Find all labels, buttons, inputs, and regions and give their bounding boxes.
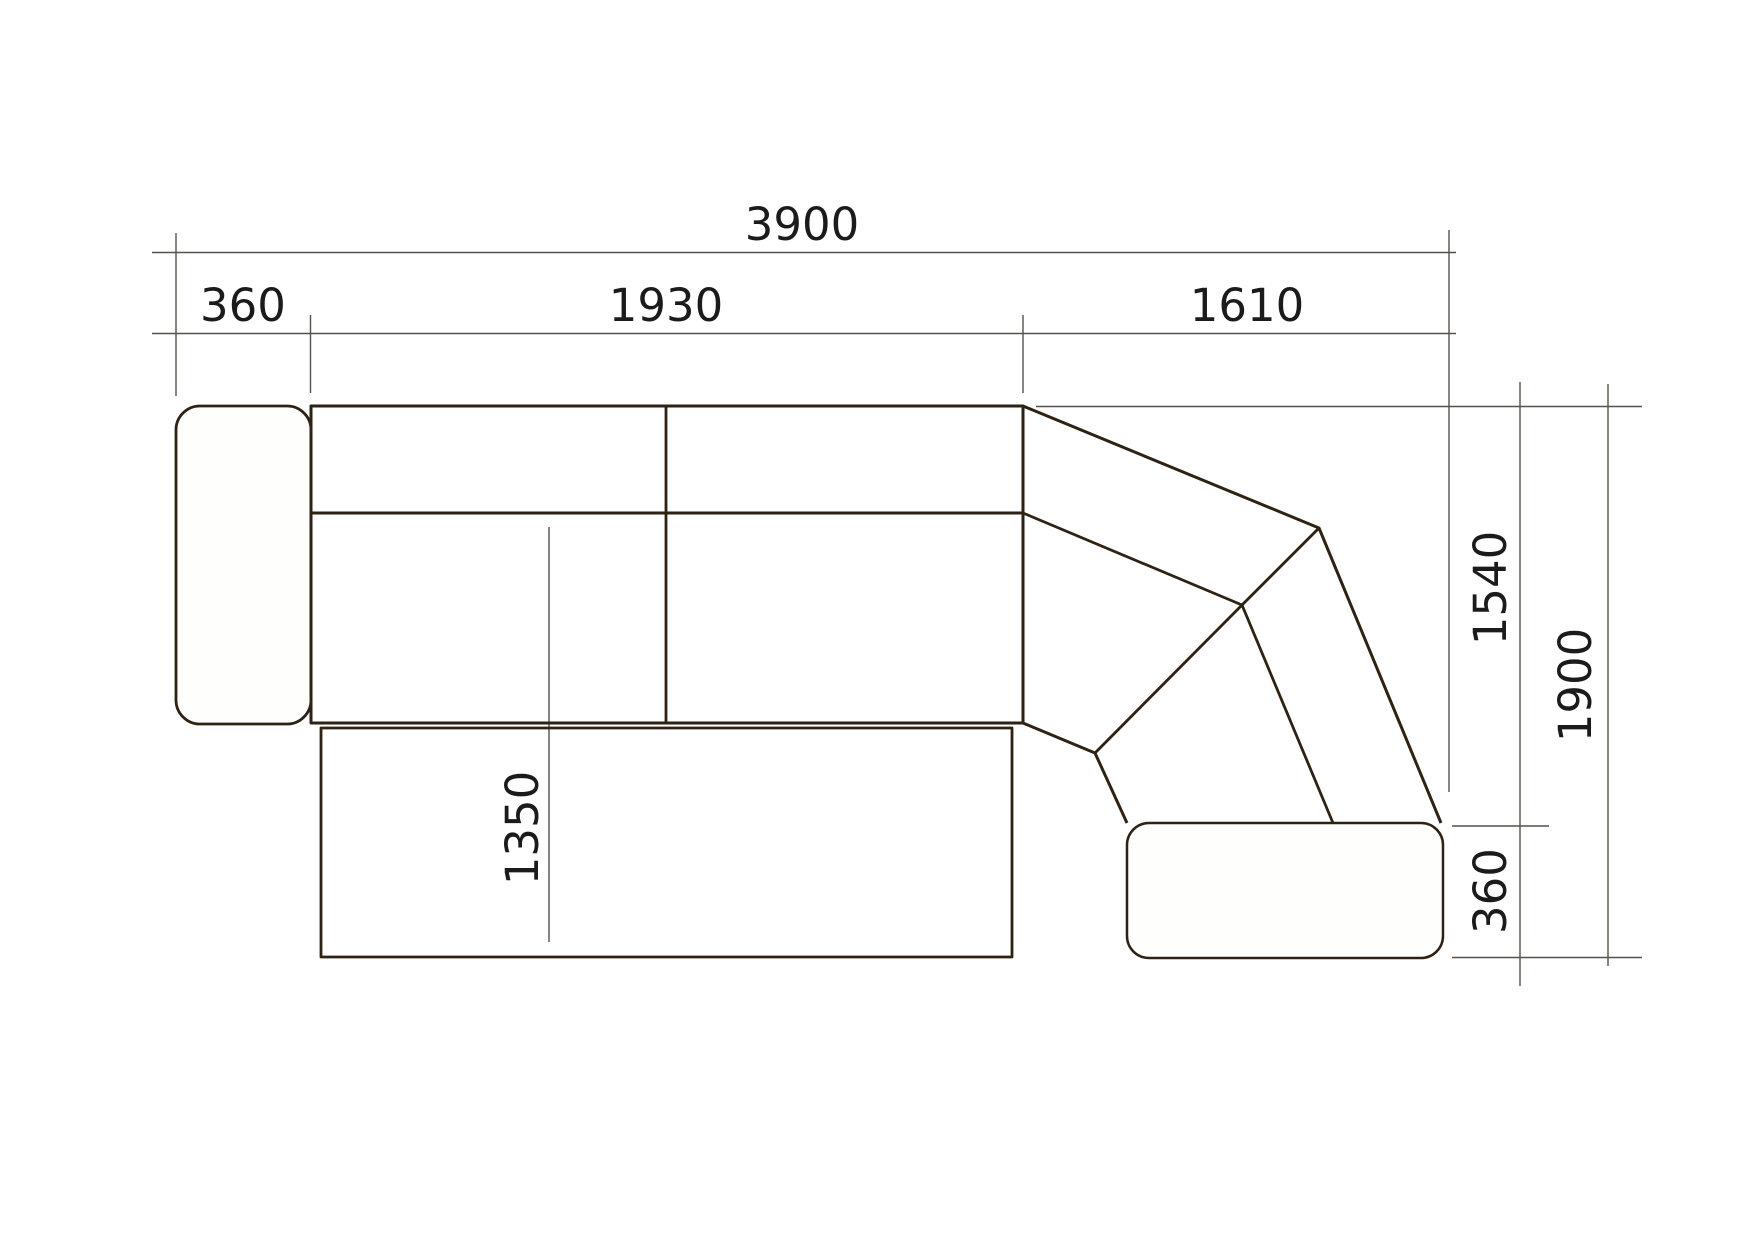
dim-label-right-total-height: 1900 <box>1549 628 1602 743</box>
dim-label-armrest-width: 360 <box>200 279 286 332</box>
corner-sofa-plan-drawing: 3900 360 1930 1610 1540 1900 360 1350 <box>0 0 1753 1240</box>
dim-label-corner-section-width: 1610 <box>1190 279 1305 332</box>
left-armrest <box>176 406 311 724</box>
corner-miter-inner <box>1095 605 1242 753</box>
chaise-section <box>321 728 1012 957</box>
dim-label-main-section-width: 1930 <box>609 279 724 332</box>
dim-label-chaise-length: 1350 <box>496 771 549 886</box>
dim-label-ottoman-depth: 360 <box>1464 848 1517 934</box>
corner-inner-backrest <box>1023 513 1242 605</box>
corner-inner-edge <box>1242 605 1333 823</box>
ottoman <box>1127 823 1443 958</box>
sofa-outline <box>176 406 1443 958</box>
dim-label-corner-side-height: 1540 <box>1464 531 1517 646</box>
corner-miter-outer <box>1242 528 1319 605</box>
dim-label-total-width: 3900 <box>745 198 860 251</box>
